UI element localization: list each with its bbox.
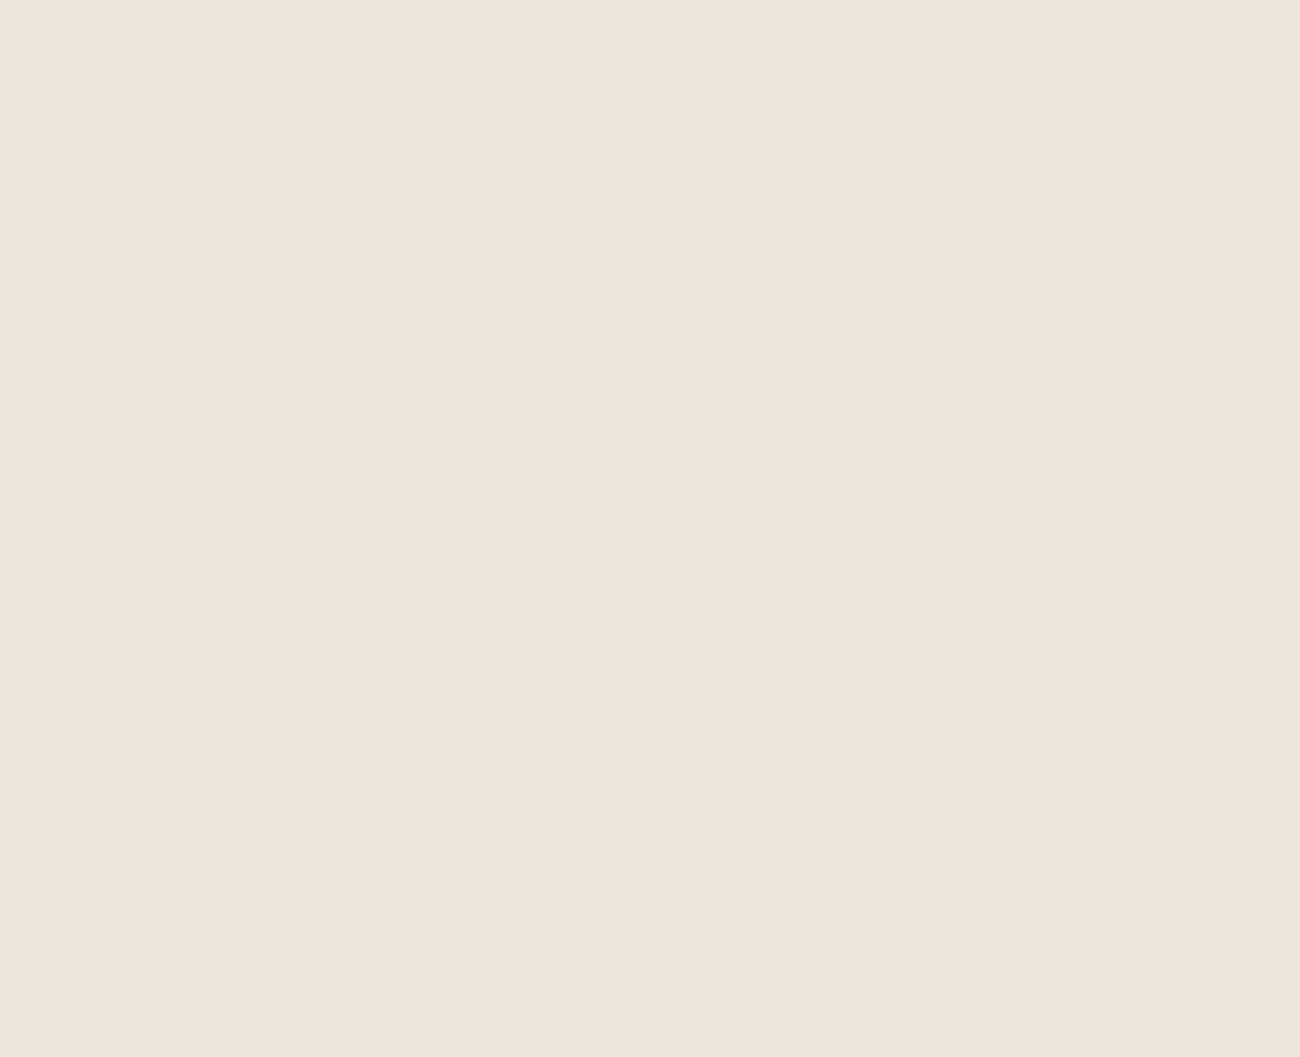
architectural-site-plan [0,0,1300,1057]
site-plan-canvas [0,0,1300,1057]
